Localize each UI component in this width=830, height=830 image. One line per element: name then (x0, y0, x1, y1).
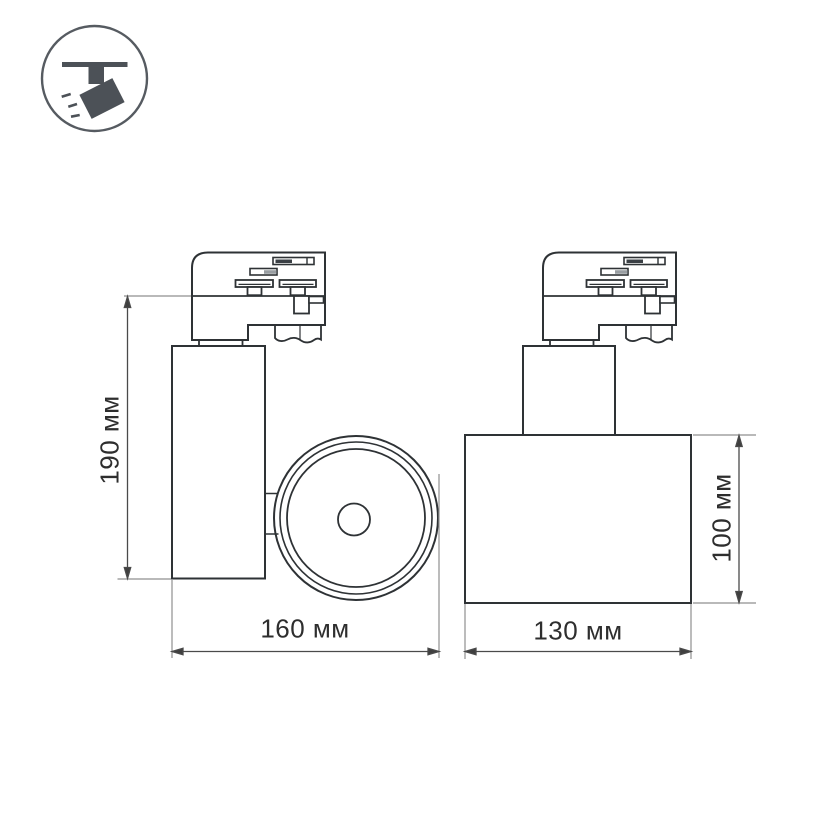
lens-assembly (274, 436, 438, 600)
lens-center-circle (338, 504, 370, 536)
arrow-right-130 (680, 648, 691, 654)
lamp-neck-right (523, 346, 615, 435)
arrow-up-100 (736, 436, 742, 447)
dimension-label-height-left: 190 мм (95, 395, 126, 484)
arrow-up-190 (124, 297, 130, 308)
icon-stem (89, 66, 105, 84)
arrow-left-130 (465, 648, 476, 654)
bezel-middle-ring (280, 442, 432, 594)
view-right (465, 253, 691, 604)
arrow-right-160 (428, 648, 439, 654)
arrow-down-100 (736, 592, 742, 603)
bezel-outer-ring (274, 436, 438, 600)
drawing-canvas: 190 мм 160 мм 130 мм 100 мм (0, 0, 830, 830)
icon-light-rays (62, 94, 80, 117)
icon-lamp-head (79, 78, 124, 119)
track-adapter-left (192, 253, 325, 347)
track-spotlight-icon (42, 26, 147, 131)
dimension-label-width-left: 160 мм (260, 614, 349, 645)
view-left (172, 253, 438, 601)
bezel-inner-ring (287, 449, 425, 587)
dimension-label-width-right: 130 мм (533, 616, 622, 647)
lamp-body-left (172, 346, 265, 579)
arrow-left-160 (172, 648, 183, 654)
arrow-down-190 (124, 568, 130, 579)
dimension-label-height-right: 100 мм (707, 473, 738, 562)
track-adapter-right (543, 253, 676, 347)
lamp-body-right (465, 435, 691, 603)
